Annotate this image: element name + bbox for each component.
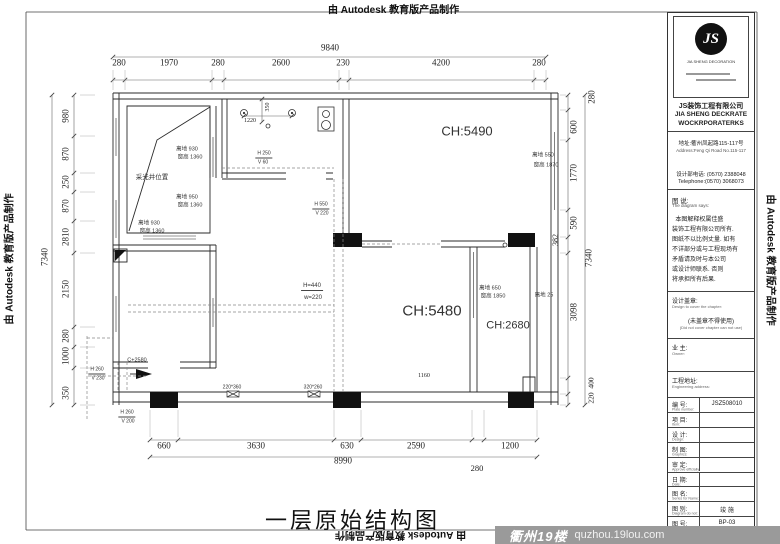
title-block-row: 设 计:Design: (668, 427, 754, 442)
company-name-en-1: JIA SHENG DECKRATE (668, 111, 754, 118)
title-block-row: 图 名:Series for Name: (668, 486, 754, 501)
shaft-symbol (114, 249, 127, 262)
row-value: JSZ508010 (702, 401, 752, 407)
plan-annotation: 离地 550 (532, 153, 554, 159)
logo-brand: JIA SHENG DECORATION (674, 59, 748, 64)
dimension-label: 382 (552, 234, 560, 246)
plan-annotation: CH:2680 (486, 321, 529, 332)
floor-plan-drawing (0, 0, 780, 544)
drawing-title: 一层原始结构图 (265, 503, 440, 535)
dimension-label: 1000 (62, 347, 71, 365)
dimension-label: 870 (62, 199, 71, 213)
autodesk-banner-left: 由 Autodesk 教育版产品制作 (1, 195, 16, 325)
dimension-label: 7340 (41, 248, 50, 266)
plan-annotation: H 260 (118, 411, 135, 418)
plan-annotation: C+2580 (127, 358, 146, 364)
watermark-brand: 衢州19楼 (509, 526, 567, 544)
dimension-label: 230 (336, 59, 350, 68)
notes-line: 将承担所有后果. (672, 275, 750, 285)
dimension-label: 280 (588, 90, 597, 104)
stamp-label-en: Design to cover the chapter: (672, 304, 722, 309)
plan-annotation: 采光井位置 (136, 175, 169, 182)
company-name-en-2: WOCKRPORATERKS (668, 120, 754, 127)
title-block-row: 审 定:Approve efficially: (668, 457, 754, 472)
plan-annotation: 离地 950 (176, 195, 198, 201)
dimension-label: 1770 (570, 164, 579, 182)
dimension-label: 280 (211, 59, 225, 68)
company-phone-cn: 设计部电话: (0570) 2388048 (668, 170, 754, 178)
plan-annotation: 离地 930 (138, 221, 160, 227)
plan-annotation: 窗高 1360 (178, 155, 203, 161)
watermark-strip: 衢州19楼 quzhou.19lou.com (495, 526, 780, 544)
title-block: JS JIA SHENG DECORATION JS装饰工程有限公司 JIA S… (667, 12, 755, 532)
site-label-en: Engineering address: (672, 384, 710, 389)
notes-line: 本图解释权属佳盛 (672, 215, 750, 225)
dimension-label: 870 (62, 147, 71, 161)
dimension-label: 1220 (244, 118, 256, 124)
dimension-label: 2150 (62, 280, 71, 298)
title-block-row: 编 号:Plate number:JSZ508010 (668, 397, 754, 412)
dimension-label: 8990 (334, 457, 352, 466)
title-block-row: 日 期:Date: (668, 472, 754, 487)
row-sublabel: Series for Name: (672, 496, 699, 501)
dimension-label: 220 (587, 392, 595, 403)
row-sublabel: Diagram do not: (672, 511, 698, 516)
plan-annotation: V 200 (121, 420, 134, 425)
plan-annotation: 离地 930 (176, 147, 198, 153)
notes-line: 装饰工程有限公司所有. (672, 225, 750, 235)
dimension-label: 2600 (272, 59, 290, 68)
plan-annotation: H 250 (255, 152, 272, 159)
plan-annotation: 离地 25 (535, 293, 554, 299)
company-logo: JS JIA SHENG DECORATION (673, 16, 749, 98)
stamp-warning-cn: (未盖章不得使用) (668, 316, 754, 325)
dimension-label: 4200 (432, 59, 450, 68)
notes-line: 或设计师联系. 否则 (672, 265, 750, 275)
plan-annotation: 窗高 1850 (481, 294, 506, 300)
plan-annotation: 离地 650 (479, 286, 501, 292)
walls (113, 93, 558, 405)
dimension-label: 660 (157, 442, 171, 451)
row-sublabel: Graphics: (672, 452, 687, 457)
logo-monogram-icon: JS (695, 23, 727, 55)
row-sublabel: Approve efficially: (672, 467, 700, 472)
notes-line: 矛盾请及时与本公司 (672, 255, 750, 265)
plan-annotation: H 550 (312, 203, 329, 210)
dimension-label: 980 (62, 109, 71, 123)
notes-title-en: The diagram says: (672, 203, 709, 208)
title-block-row: 图 别:Diagram do not:竣 施 (668, 501, 754, 516)
row-value: 竣 施 (702, 505, 752, 514)
autodesk-banner-right: 由 Autodesk 教育版产品制作 (765, 195, 780, 325)
dimension-label: 630 (340, 442, 354, 451)
dimension-label: 280 (62, 329, 71, 343)
row-sublabel: Date: (672, 482, 681, 487)
plan-annotation: 320*260 (304, 386, 323, 391)
plan-annotation: 窗高 1870 (534, 163, 559, 169)
title-block-row: 制 图:Graphics: (668, 442, 754, 457)
dimension-label: 400 (587, 377, 595, 388)
company-name-cn: JS装饰工程有限公司 (668, 101, 754, 111)
logo-fineprint-1 (686, 73, 730, 75)
dimension-label: 2590 (407, 442, 425, 451)
dimension-label: 3630 (247, 442, 265, 451)
dimension-lines (50, 55, 587, 459)
dimension-label: 9840 (321, 44, 339, 53)
plan-annotation: V 230 (91, 377, 104, 382)
dimension-label: 280 (112, 59, 126, 68)
row-sublabel: Item: (672, 422, 680, 427)
drawing-sheet: 由 Autodesk 教育版产品制作 由 Autodesk 教育版产品制作 由 … (0, 0, 780, 544)
plan-annotation: 220*360 (223, 386, 242, 391)
dimension-label: 7340 (585, 249, 594, 267)
plan-annotation: 窗高 1360 (178, 203, 203, 209)
plan-annotation: w=220 (304, 295, 322, 301)
row-sublabel: Plate number: (672, 407, 694, 412)
company-phone-en: Telephone:(0570) 3068073 (668, 179, 754, 185)
plan-annotation: CH:5480 (402, 304, 461, 319)
company-address-cn: 地址:衢州凤起路115-117号 (668, 139, 754, 147)
watermark-site-link[interactable]: quzhou.19lou.com (574, 529, 664, 541)
entry-arrow-icon (130, 369, 152, 379)
dimension-label: 350 (62, 386, 71, 400)
title-block-row: 项 目:Item: (668, 412, 754, 427)
dimension-label: 280 (471, 464, 484, 473)
plan-annotation: H 260 (88, 368, 105, 375)
row-sublabel: Design: (672, 437, 684, 442)
dimension-label: 1970 (160, 59, 178, 68)
stamp-warning-en: (Did not cover chapter can not use) (668, 325, 754, 330)
dimension-label: 600 (570, 120, 579, 134)
notes-paragraph: 本图解释权属佳盛装饰工程有限公司所有.图纸不以比例丈量. 如有不详部分或与工程现… (672, 215, 750, 285)
dimension-label: 280 (532, 59, 546, 68)
dashed-lines (87, 168, 441, 420)
plan-annotation: V 220 (315, 212, 328, 217)
notes-line: 不详部分或与工程现场有 (672, 245, 750, 255)
company-address-en: Address:Feng Qi Road No.115-117 (668, 148, 754, 153)
dimension-label: 350 (265, 103, 271, 112)
dimension-label: 590 (570, 216, 579, 230)
plan-annotation: H=440 (301, 283, 323, 291)
plan-annotation: 窗高 1360 (140, 229, 165, 235)
sheet-border (26, 12, 757, 530)
dimension-label: 3098 (570, 303, 579, 321)
dimension-label: 2810 (62, 228, 71, 246)
dimension-label: 1200 (501, 442, 519, 451)
dimension-label: 250 (62, 175, 71, 189)
plan-annotation: V 60 (258, 161, 268, 166)
logo-fineprint-2 (696, 79, 736, 81)
dimension-label: 1160 (418, 373, 430, 379)
plan-annotation: CH:5490 (441, 125, 492, 138)
notes-line: 图纸不以比例丈量. 如有 (672, 235, 750, 245)
owner-label-en: Owner: (672, 351, 685, 356)
autodesk-banner-top: 由 Autodesk 教育版产品制作 (328, 1, 459, 16)
